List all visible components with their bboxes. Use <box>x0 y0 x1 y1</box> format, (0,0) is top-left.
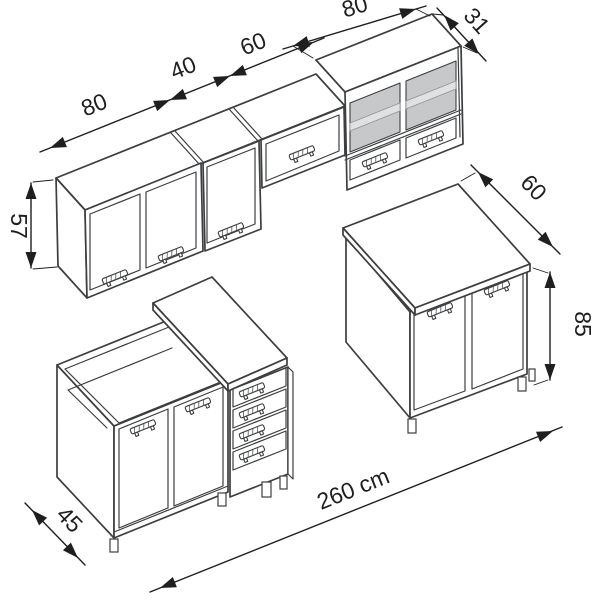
drawer-unit-side <box>288 367 293 479</box>
dim-label-base-depth: 60 <box>516 169 552 205</box>
cabinet-leg <box>262 482 271 497</box>
dim-label-wall-depth: 31 <box>459 2 495 38</box>
cabinet-leg <box>518 377 526 391</box>
cabinet-leg <box>529 369 535 381</box>
cabinet-leg <box>218 493 226 506</box>
dim-label-wall-c: 60 <box>236 27 269 61</box>
dim-label-wall-a: 80 <box>77 88 110 122</box>
diagram-canvas: 80 40 60 80 31 57 <box>0 0 600 600</box>
dim-label-wall-b: 40 <box>166 51 199 85</box>
dim-label-wall-height: 57 <box>6 213 32 239</box>
kitchen-dimension-diagram: 80 40 60 80 31 57 <box>0 0 600 600</box>
base-cabinet <box>343 184 535 433</box>
dim-label-display-width: 80 <box>339 0 371 23</box>
cabinet-leg <box>408 419 416 433</box>
dim-wall-height: 57 <box>6 180 57 269</box>
dim-label-total-length: 260 cm <box>313 462 393 514</box>
dim-label-base-height: 85 <box>570 311 596 337</box>
dim-label-corner-depth: 45 <box>52 501 88 537</box>
cabinet-leg <box>280 476 287 489</box>
dim-base-height: 85 <box>533 268 596 385</box>
dim-corner-depth: 45 <box>25 501 88 565</box>
cabinet-leg <box>110 539 118 552</box>
